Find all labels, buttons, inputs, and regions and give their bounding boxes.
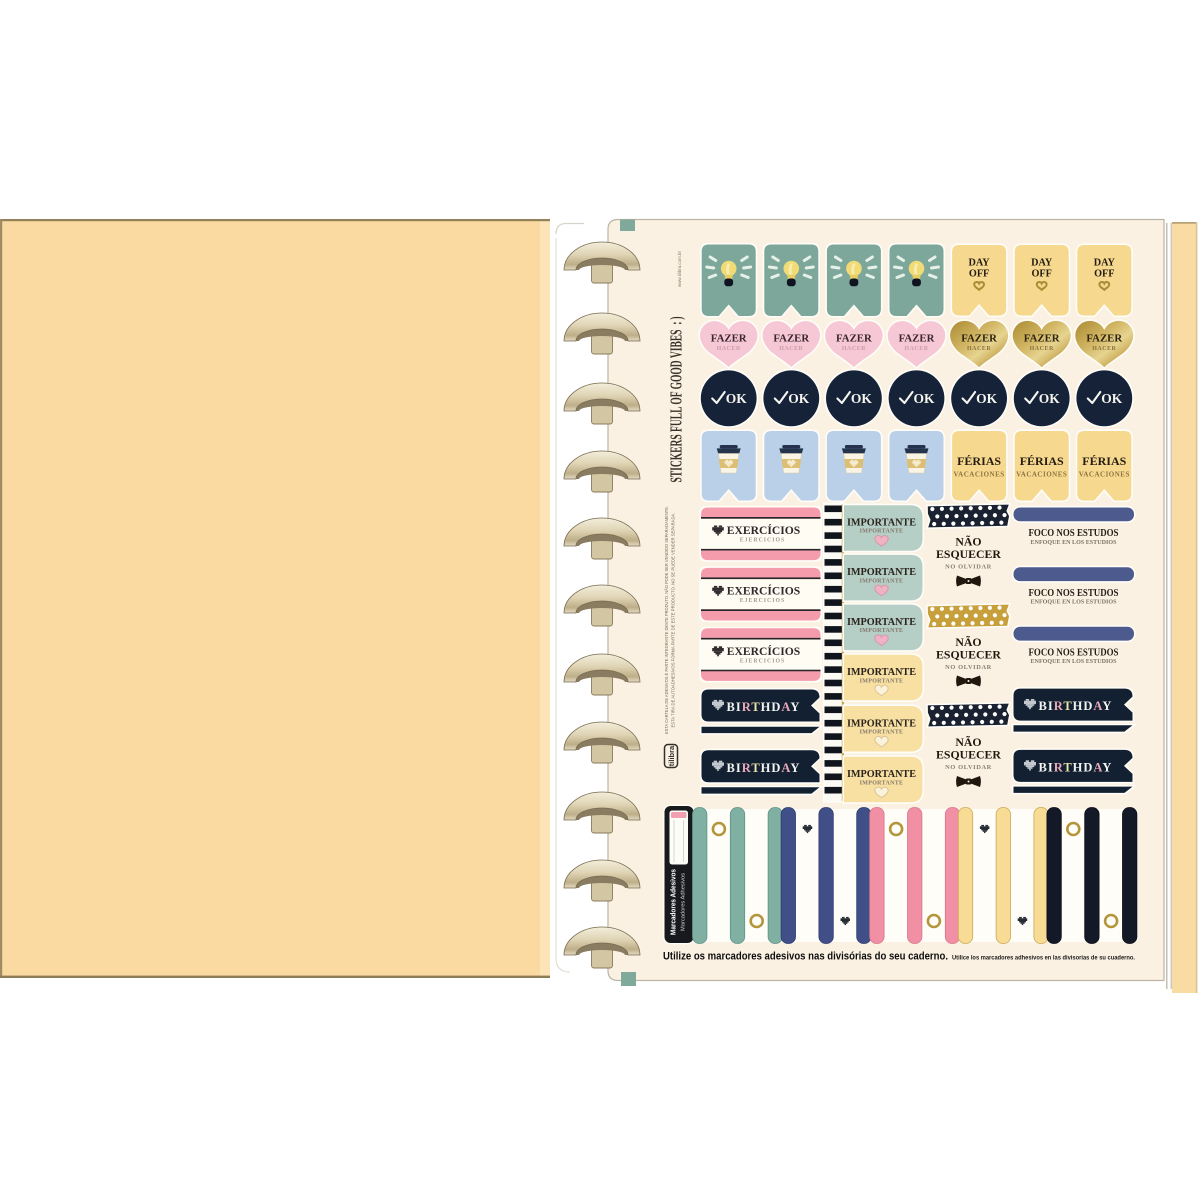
svg-text:Utilize os marcadores adesivos: Utilize os marcadores adesivos nas divis… <box>663 951 948 963</box>
svg-text:HACER: HACER <box>842 346 866 352</box>
svg-text:IMPORTANTE: IMPORTANTE <box>847 769 916 780</box>
svg-text:HACER: HACER <box>904 346 928 352</box>
svg-text:ESQUECER: ESQUECER <box>936 648 1001 662</box>
svg-text:FAZER: FAZER <box>711 333 747 345</box>
svg-text:HACER: HACER <box>967 346 991 352</box>
svg-text:OFF: OFF <box>1032 268 1052 279</box>
svg-text:EJERCICIOS: EJERCICIOS <box>740 658 785 664</box>
svg-text:BIRTHDAY: BIRTHDAY <box>727 700 801 714</box>
svg-text:NO OLVIDAR: NO OLVIDAR <box>945 564 992 571</box>
svg-text:STICKERS FULL OF GOOD VIBES :: STICKERS FULL OF GOOD VIBES : ) <box>667 317 686 483</box>
svg-text:OK: OK <box>788 391 810 406</box>
svg-text:OK: OK <box>1101 391 1123 406</box>
svg-text:FAZER: FAZER <box>773 333 809 345</box>
svg-text:DAY: DAY <box>1031 258 1053 269</box>
svg-text:NO OLVIDAR: NO OLVIDAR <box>945 664 992 671</box>
svg-text:OK: OK <box>1039 391 1061 406</box>
svg-text:IMPORTANTE: IMPORTANTE <box>860 578 904 584</box>
svg-text:ESTA CARTELA DE ADESIVOS É PAR: ESTA CARTELA DE ADESIVOS É PARTE INTEGRA… <box>664 506 669 734</box>
svg-text:EXERCÍCIOS: EXERCÍCIOS <box>727 523 800 537</box>
svg-text:IMPORTANTE: IMPORTANTE <box>860 529 904 535</box>
svg-text:ENFOQUE EN LOS ESTUDIOS: ENFOQUE EN LOS ESTUDIOS <box>1031 539 1118 546</box>
svg-text:FAZER: FAZER <box>1086 333 1122 345</box>
svg-text:NO OLVIDAR: NO OLVIDAR <box>945 764 992 771</box>
svg-text:FAZER: FAZER <box>1024 333 1060 345</box>
svg-text:FÉRIAS: FÉRIAS <box>1082 454 1126 468</box>
svg-text:VACACIONES: VACACIONES <box>954 471 1005 479</box>
svg-text:IMPORTANTE: IMPORTANTE <box>860 678 904 684</box>
svg-text:OK: OK <box>851 391 873 406</box>
svg-text:IMPORTANTE: IMPORTANTE <box>847 718 916 729</box>
svg-text:IMPORTANTE: IMPORTANTE <box>860 730 904 736</box>
svg-text:FAZER: FAZER <box>961 333 997 345</box>
svg-text:FOCO NOS ESTUDOS: FOCO NOS ESTUDOS <box>1029 648 1119 659</box>
svg-text:ESQUECER: ESQUECER <box>936 547 1001 561</box>
svg-text:EJERCICIOS: EJERCICIOS <box>740 598 785 604</box>
svg-text:DAY: DAY <box>1094 258 1116 269</box>
svg-text:EXERCÍCIOS: EXERCÍCIOS <box>727 583 800 597</box>
svg-text:IMPORTANTE: IMPORTANTE <box>847 518 916 529</box>
svg-text:tilibra: tilibra <box>667 745 676 766</box>
svg-text:OK: OK <box>914 391 936 406</box>
svg-text:HACER: HACER <box>779 346 803 352</box>
svg-text:FÉRIAS: FÉRIAS <box>957 454 1001 468</box>
svg-text:BIRTHDAY: BIRTHDAY <box>727 761 801 775</box>
svg-text:HACER: HACER <box>1092 346 1116 352</box>
svg-text:www.tilibra.com.br: www.tilibra.com.br <box>677 251 683 287</box>
svg-text:VACACIONES: VACACIONES <box>1079 471 1130 479</box>
svg-text:OK: OK <box>976 391 998 406</box>
svg-text:BIRTHDAY: BIRTHDAY <box>1039 699 1113 713</box>
svg-text:IMPORTANTE: IMPORTANTE <box>847 567 916 578</box>
svg-text:ESQUECER: ESQUECER <box>936 748 1001 762</box>
svg-text:VACACIONES: VACACIONES <box>1016 471 1067 479</box>
svg-text:FOCO NOS ESTUDOS: FOCO NOS ESTUDOS <box>1029 588 1119 599</box>
svg-text:Marcadores Adesivos: Marcadores Adesivos <box>671 869 678 935</box>
svg-text:EJERCICIOS: EJERCICIOS <box>740 538 785 544</box>
svg-text:FÉRIAS: FÉRIAS <box>1020 454 1064 468</box>
svg-text:OFF: OFF <box>969 268 989 279</box>
svg-text:Utilice los marcadores adhesiv: Utilice los marcadores adhesivos en las … <box>952 955 1135 962</box>
svg-text:OK: OK <box>726 391 748 406</box>
svg-text:ENFOQUE EN LOS ESTUDIOS: ENFOQUE EN LOS ESTUDIOS <box>1031 658 1118 665</box>
svg-text:OFF: OFF <box>1094 268 1114 279</box>
svg-text:IMPORTANTE: IMPORTANTE <box>860 628 904 634</box>
svg-text:BIRTHDAY: BIRTHDAY <box>1039 760 1113 774</box>
svg-text:FAZER: FAZER <box>836 333 872 345</box>
svg-text:Marcadores Adhesivos: Marcadores Adhesivos <box>681 872 687 931</box>
svg-text:DAY: DAY <box>969 258 991 269</box>
svg-text:HACER: HACER <box>1030 346 1054 352</box>
svg-text:IMPORTANTE: IMPORTANTE <box>860 780 904 786</box>
svg-text:EXERCÍCIOS: EXERCÍCIOS <box>727 644 800 658</box>
svg-text:ENFOQUE EN LOS ESTUDIOS: ENFOQUE EN LOS ESTUDIOS <box>1031 599 1118 606</box>
svg-text:IMPORTANTE: IMPORTANTE <box>847 667 916 678</box>
svg-text:ESTA TIRA DE AUTOADHESIVOS FOR: ESTA TIRA DE AUTOADHESIVOS FORMA PARTE D… <box>671 513 676 728</box>
svg-text:IMPORTANTE: IMPORTANTE <box>847 617 916 628</box>
svg-text:HACER: HACER <box>717 346 741 352</box>
svg-text:FOCO NOS ESTUDOS: FOCO NOS ESTUDOS <box>1029 528 1119 539</box>
svg-text:FAZER: FAZER <box>899 333 935 345</box>
